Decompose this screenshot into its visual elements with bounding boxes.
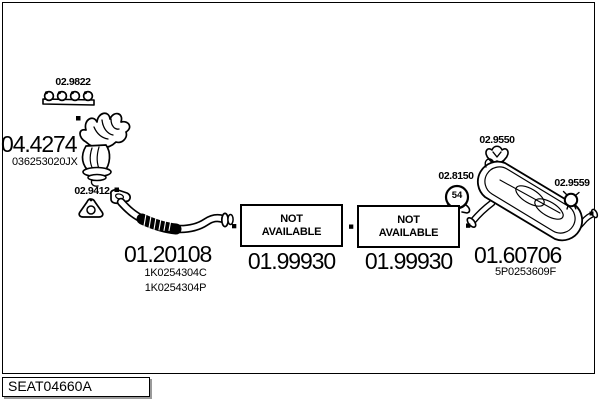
drawing-code: SEAT04660A [8,378,92,394]
label-clamp[interactable]: 02.8150 [434,171,478,182]
label-manifold-gasket[interactable]: 02.9822 [51,77,95,88]
centre-silencer-right-box[interactable]: NOT AVAILABLE [357,205,460,248]
availability-text-left: NOT AVAILABLE [258,213,326,239]
label-tailpipe-clamp[interactable]: 02.9559 [550,178,594,189]
oem-rear-silencer: 5P0253609F [474,266,577,278]
exhaust-system-diagram: 02.9822 04.4274 036253020JX 02.9412 01.2… [0,0,600,400]
label-front-pipe[interactable]: 01.20108 [124,243,211,266]
clamp-diameter: 54 [448,191,466,201]
oem-front-pipe-2: 1K0254304P [124,282,227,294]
label-front-pipe-gasket[interactable]: 02.9412 [70,186,114,197]
diagram-canvas [0,0,600,400]
manifold-gasket-drawing[interactable] [43,91,94,105]
label-centre-silencer-left[interactable]: 01.99930 [240,250,343,273]
label-rear-silencer[interactable]: 01.60706 [474,244,561,267]
label-rubber-mounting[interactable]: 02.9550 [475,135,519,146]
drawing-code-box: SEAT04660A [2,377,150,397]
oem-front-pipe-1: 1K0254304C [124,267,227,279]
centre-silencer-left-box[interactable]: NOT AVAILABLE [240,204,343,247]
availability-text-right: NOT AVAILABLE [375,214,443,240]
front-pipe-drawing[interactable] [111,190,233,231]
catalytic-converter-drawing[interactable] [80,113,130,186]
label-catalytic-converter[interactable]: 04.4274 [1,133,76,156]
label-centre-silencer-right[interactable]: 01.99930 [357,250,460,273]
oem-catalytic-converter: 036253020JX [12,156,78,168]
rear-silencer-drawing[interactable] [466,159,599,240]
front-pipe-gasket-drawing[interactable] [79,199,103,217]
